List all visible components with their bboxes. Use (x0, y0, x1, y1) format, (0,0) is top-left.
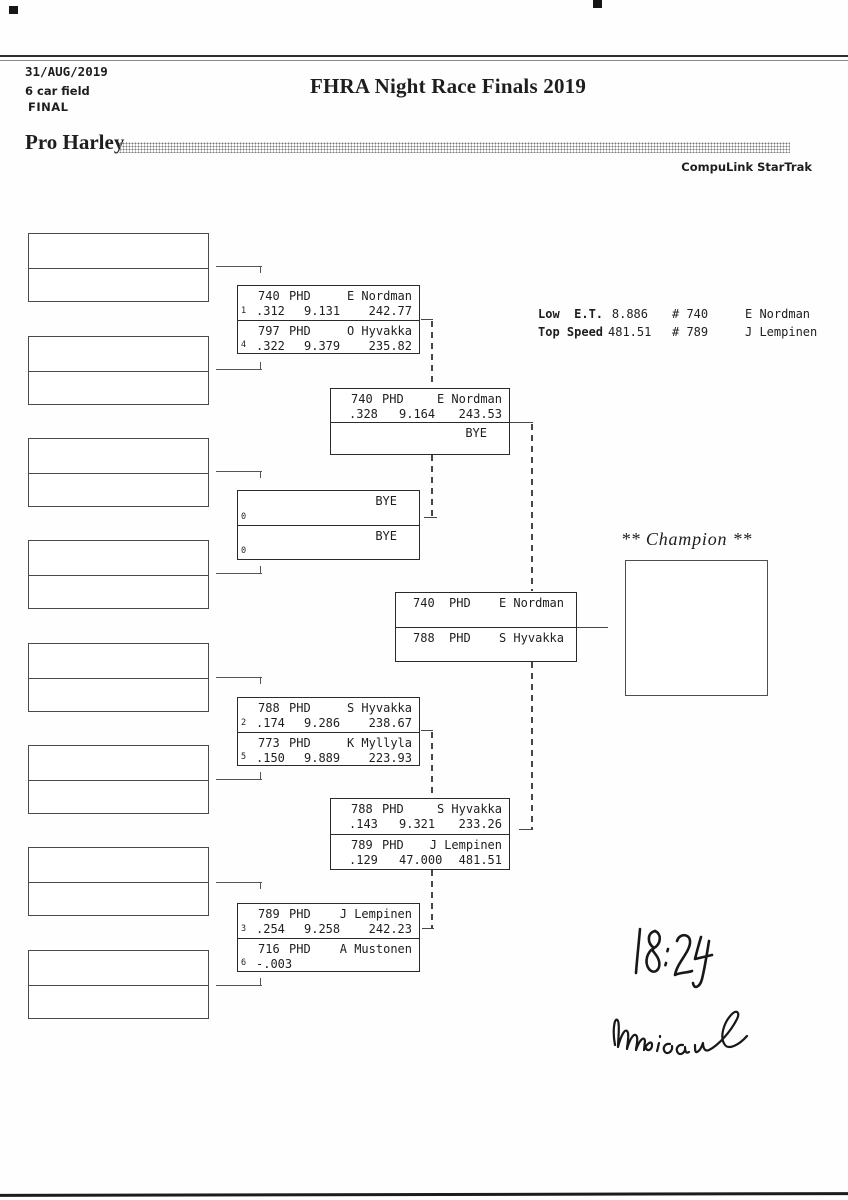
connector-line (422, 928, 434, 929)
reaction-time: .254 (256, 922, 304, 936)
entry: 3 789 PHD J Lempinen .254 9.258 242.23 (238, 904, 419, 938)
elapsed-time: 9.286 (304, 716, 340, 730)
entry-line1: BYE (331, 423, 509, 440)
seed-number: 3 (241, 925, 246, 934)
ladder-stub-tick (260, 266, 261, 273)
connector-line-champion (577, 627, 608, 628)
entry: 789 PHD J Lempinen .129 47.000 481.51 (331, 834, 509, 869)
ladder-stub (216, 779, 262, 780)
match-box-final: 740 PHD E Nordman 788 PHD S Hyvakka (395, 592, 577, 662)
entry: 6 716 PHD A Mustonen -.003 (238, 938, 419, 972)
top-speed-driver: J Lempinen (745, 325, 817, 339)
entry-line1: 716 PHD A Mustonen (238, 939, 419, 956)
class-abbr: PHD (289, 907, 311, 921)
reaction-time: .150 (256, 751, 304, 765)
page-title: FHRA Night Race Finals 2019 (310, 74, 586, 99)
timing-system-label: CompuLink StarTrak (596, 160, 812, 174)
entry-line1: 788 PHD S Hyvakka (331, 799, 509, 816)
reaction-time: .143 (349, 817, 399, 831)
entry-line2: .129 47.000 481.51 (331, 852, 509, 867)
class-abbr: PHD (449, 631, 471, 645)
speed: 235.82 (369, 339, 412, 353)
entry: 2 788 PHD S Hyvakka .174 9.286 238.67 (238, 698, 419, 732)
entry: 740 PHD E Nordman .328 9.164 243.53 (331, 389, 509, 422)
empty-ladder-box (28, 540, 209, 609)
connector-dashed (431, 455, 433, 517)
driver-name: J Lempinen (430, 838, 502, 852)
entry-line2: .322 9.379 235.82 (238, 338, 419, 353)
bye-label: BYE (465, 426, 502, 440)
ladder-stub (216, 369, 262, 370)
ladder-stub-tick (260, 362, 261, 369)
empty-ladder-box (28, 847, 209, 916)
entry-line1: 740 PHD E Nordman (238, 286, 419, 303)
entry-line1: 797 PHD O Hyvakka (238, 321, 419, 338)
match-box-bye: 0 BYE 0 BYE (237, 490, 420, 560)
entry-line1: 740 PHD E Nordman (331, 389, 509, 406)
connector-line (519, 829, 533, 830)
car-number: 716 (258, 942, 289, 956)
ladder-stub-tick (260, 882, 261, 889)
driver-name: S Hyvakka (499, 631, 564, 645)
speed: 238.67 (369, 716, 412, 730)
driver-name: K Myllyla (347, 736, 412, 750)
class-abbr: PHD (382, 392, 404, 406)
class-abbr: PHD (382, 802, 404, 816)
ladder-stub-tick (260, 471, 261, 478)
ladder-stub-tick (260, 677, 261, 684)
ladder-stub-tick (260, 772, 261, 779)
low-et-value: 8.886 (608, 307, 648, 321)
class-abbr: PHD (289, 289, 311, 303)
seed-number: 1 (241, 307, 246, 316)
driver-name: E Nordman (437, 392, 502, 406)
handwritten-time (636, 929, 712, 987)
class-abbr: PHD (382, 838, 404, 852)
empty-ladder-box (28, 336, 209, 405)
connector-line (421, 319, 433, 320)
top-speed-value: 481.51 (608, 325, 648, 339)
connector-line (510, 422, 533, 423)
speed: 243.53 (459, 407, 502, 421)
elapsed-time: 9.321 (399, 817, 435, 831)
car-number: 788 (258, 701, 289, 715)
class-abbr: PHD (449, 596, 471, 610)
reaction-time: .322 (256, 339, 304, 353)
car-number: 740 (351, 392, 382, 406)
reaction-time: .174 (256, 716, 304, 730)
class-abbr: PHD (289, 942, 311, 956)
bye-label: BYE (375, 529, 412, 543)
entry-line2: .328 9.164 243.53 (331, 406, 509, 421)
header-rule-bottom (0, 60, 848, 61)
entry-line2: -.003 (238, 956, 419, 971)
event-stats: Low E.T. 8.886 # 740 E Nordman Top Speed… (538, 307, 817, 343)
match-box-r1-mid: 2 788 PHD S Hyvakka .174 9.286 238.67 5 … (237, 697, 420, 766)
car-number: 789 (351, 838, 382, 852)
driver-name: O Hyvakka (347, 324, 412, 338)
car-number: 740 (258, 289, 289, 303)
reaction-time: .328 (349, 407, 399, 421)
entry-line2: .254 9.258 242.23 (238, 921, 419, 936)
connector-dashed (531, 424, 533, 591)
elapsed-time: 9.258 (304, 922, 340, 936)
empty-ladder-box (28, 745, 209, 814)
empty-ladder-box (28, 233, 209, 302)
seed-number: 5 (241, 753, 246, 762)
driver-name: E Nordman (347, 289, 412, 303)
empty-ladder-box (28, 438, 209, 507)
speed: 481.51 (459, 853, 502, 867)
entry-line1: 789 PHD J Lempinen (331, 835, 509, 852)
top-speed-label: Top Speed (538, 325, 608, 339)
entry: 0 BYE (238, 525, 419, 559)
entry-line1: 788 PHD S Hyvakka (238, 698, 419, 715)
car-number: 789 (258, 907, 289, 921)
round-label: FINAL (28, 100, 69, 114)
seed-number: 6 (241, 959, 246, 968)
handwriting (595, 893, 775, 1063)
ladder-stub (216, 573, 262, 574)
entry-line2: .143 9.321 233.26 (331, 816, 509, 831)
entry-line2: .312 9.131 242.77 (238, 303, 419, 318)
elapsed-time: 9.889 (304, 751, 340, 765)
speed: 242.77 (369, 304, 412, 318)
ladder-stub-tick (260, 566, 261, 573)
entry: 4 797 PHD O Hyvakka .322 9.379 235.82 (238, 320, 419, 354)
low-et-row: Low E.T. 8.886 # 740 E Nordman (538, 307, 817, 325)
driver-name: J Lempinen (340, 907, 412, 921)
entry-line1: 740 PHD E Nordman (396, 593, 576, 610)
connector-dashed (431, 321, 433, 387)
speed: 233.26 (459, 817, 502, 831)
connector-line (424, 517, 437, 518)
empty-ladder-box (28, 950, 209, 1019)
champion-label: ** Champion ** (621, 529, 752, 550)
entry-line1: BYE (238, 491, 419, 508)
entry-line1: 789 PHD J Lempinen (238, 904, 419, 921)
entry-line1: 773 PHD K Myllyla (238, 733, 419, 750)
ladder-stub (216, 266, 262, 267)
driver-name: A Mustonen (340, 942, 412, 956)
entry-line2: .174 9.286 238.67 (238, 715, 419, 730)
scan-artifact (593, 0, 602, 8)
ladder-stub (216, 882, 262, 883)
class-name: Pro Harley (25, 130, 124, 155)
elapsed-time: 47.000 (399, 853, 442, 867)
entry: 788 PHD S Hyvakka .143 9.321 233.26 (331, 799, 509, 834)
elapsed-time: 9.379 (304, 339, 340, 353)
driver-name: S Hyvakka (347, 701, 412, 715)
entry: 740 PHD E Nordman (396, 593, 576, 627)
seed-number: 0 (241, 513, 246, 522)
match-box-semi-top: 740 PHD E Nordman .328 9.164 243.53 BYE (330, 388, 510, 455)
halftone-band (119, 142, 790, 153)
match-box-semi-bottom: 788 PHD S Hyvakka .143 9.321 233.26 789 … (330, 798, 510, 870)
ladder-stub (216, 985, 262, 986)
connector-line (421, 730, 433, 731)
car-number: 773 (258, 736, 289, 750)
car-number: 740 (413, 596, 449, 610)
entry: BYE (331, 422, 509, 455)
driver-name: E Nordman (499, 596, 564, 610)
class-abbr: PHD (289, 736, 311, 750)
ladder-stub-tick (260, 978, 261, 985)
car-number: 797 (258, 324, 289, 338)
event-date: 31/AUG/2019 (25, 64, 108, 79)
top-speed-car: # 789 (672, 325, 721, 339)
entry-line1: BYE (238, 526, 419, 543)
car-number: 788 (351, 802, 382, 816)
low-et-label: Low E.T. (538, 307, 608, 321)
entry: 1 740 PHD E Nordman .312 9.131 242.77 (238, 286, 419, 320)
match-box-r1-bottom: 3 789 PHD J Lempinen .254 9.258 242.23 6… (237, 903, 420, 972)
header-rule-top (0, 55, 848, 57)
reaction-time: .312 (256, 304, 304, 318)
handwritten-signature (614, 1012, 747, 1054)
entry: 5 773 PHD K Myllyla .150 9.889 223.93 (238, 732, 419, 766)
connector-dashed (431, 732, 433, 797)
race-ladder-sheet: 31/AUG/2019 6 car field FINAL FHRA Night… (0, 0, 848, 1200)
match-box-r1-top: 1 740 PHD E Nordman .312 9.131 242.77 4 … (237, 285, 420, 354)
speed: 242.23 (369, 922, 412, 936)
low-et-driver: E Nordman (745, 307, 810, 321)
class-abbr: PHD (289, 701, 311, 715)
ladder-stub (216, 677, 262, 678)
top-speed-row: Top Speed 481.51 # 789 J Lempinen (538, 325, 817, 343)
bye-label: BYE (375, 494, 412, 508)
reaction-time: -.003 (256, 957, 304, 971)
entry-line1: 788 PHD S Hyvakka (396, 628, 576, 645)
entry: 788 PHD S Hyvakka (396, 627, 576, 661)
class-abbr: PHD (289, 324, 311, 338)
connector-dashed (531, 662, 533, 829)
reaction-time: .129 (349, 853, 399, 867)
seed-number: 2 (241, 719, 246, 728)
seed-number: 0 (241, 547, 246, 556)
car-number: 788 (413, 631, 449, 645)
elapsed-time: 9.164 (399, 407, 435, 421)
entry: 0 BYE (238, 491, 419, 525)
driver-name: S Hyvakka (437, 802, 502, 816)
scan-artifact (9, 6, 18, 14)
scan-artifact-bottom-line (0, 1192, 848, 1196)
connector-dashed (431, 870, 433, 928)
speed: 223.93 (369, 751, 412, 765)
ladder-stub (216, 471, 262, 472)
field-size: 6 car field (25, 84, 90, 98)
entry-line2: .150 9.889 223.93 (238, 750, 419, 765)
elapsed-time: 9.131 (304, 304, 340, 318)
empty-ladder-box (28, 643, 209, 712)
low-et-car: # 740 (672, 307, 721, 321)
champion-box (625, 560, 768, 696)
seed-number: 4 (241, 341, 246, 350)
